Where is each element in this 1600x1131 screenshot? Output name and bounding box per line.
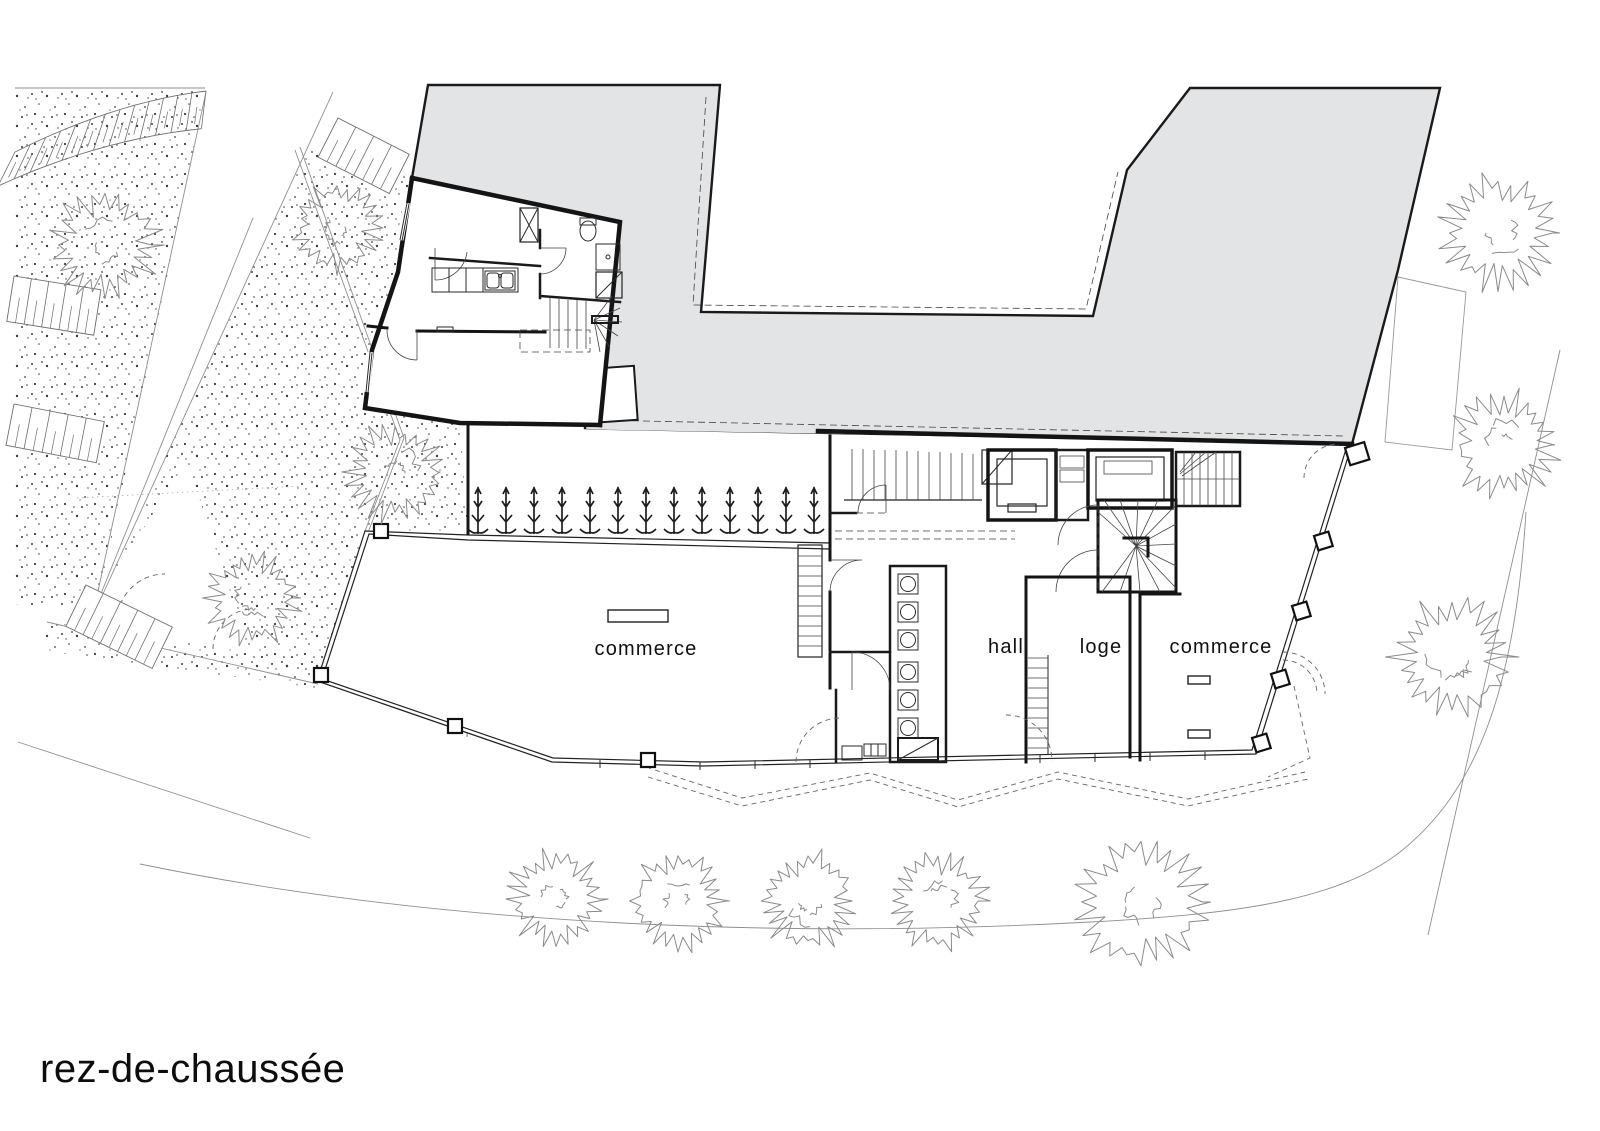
tree-icon xyxy=(506,848,608,947)
room-label-commerce-left: commerce xyxy=(595,638,698,660)
tree-icon xyxy=(630,856,730,953)
commerce-fixture xyxy=(1188,676,1210,684)
room-label-commerce-right: commerce xyxy=(1170,636,1273,658)
tree-icon xyxy=(1438,173,1560,293)
floor-plan-sheet: commerce hall loge commerce rez-de-chaus… xyxy=(0,0,1600,1131)
annex-outline xyxy=(1385,277,1466,450)
tree-icon xyxy=(1075,841,1211,965)
tree-icon xyxy=(1453,388,1561,499)
room-label-hall: hall xyxy=(988,636,1024,658)
drawing-title: rez-de-chaussée xyxy=(40,1047,345,1091)
commerce-counter xyxy=(608,610,668,622)
floor-plan-canvas: commerce hall loge commerce rez-de-chaus… xyxy=(0,0,1600,1131)
canopy-zigzag xyxy=(648,770,1308,807)
tree-icon xyxy=(891,852,990,951)
tree-icon xyxy=(761,849,855,947)
commerce-fixture xyxy=(1188,730,1210,738)
room-label-loge: loge xyxy=(1080,636,1123,658)
tree-icon xyxy=(1386,598,1519,717)
